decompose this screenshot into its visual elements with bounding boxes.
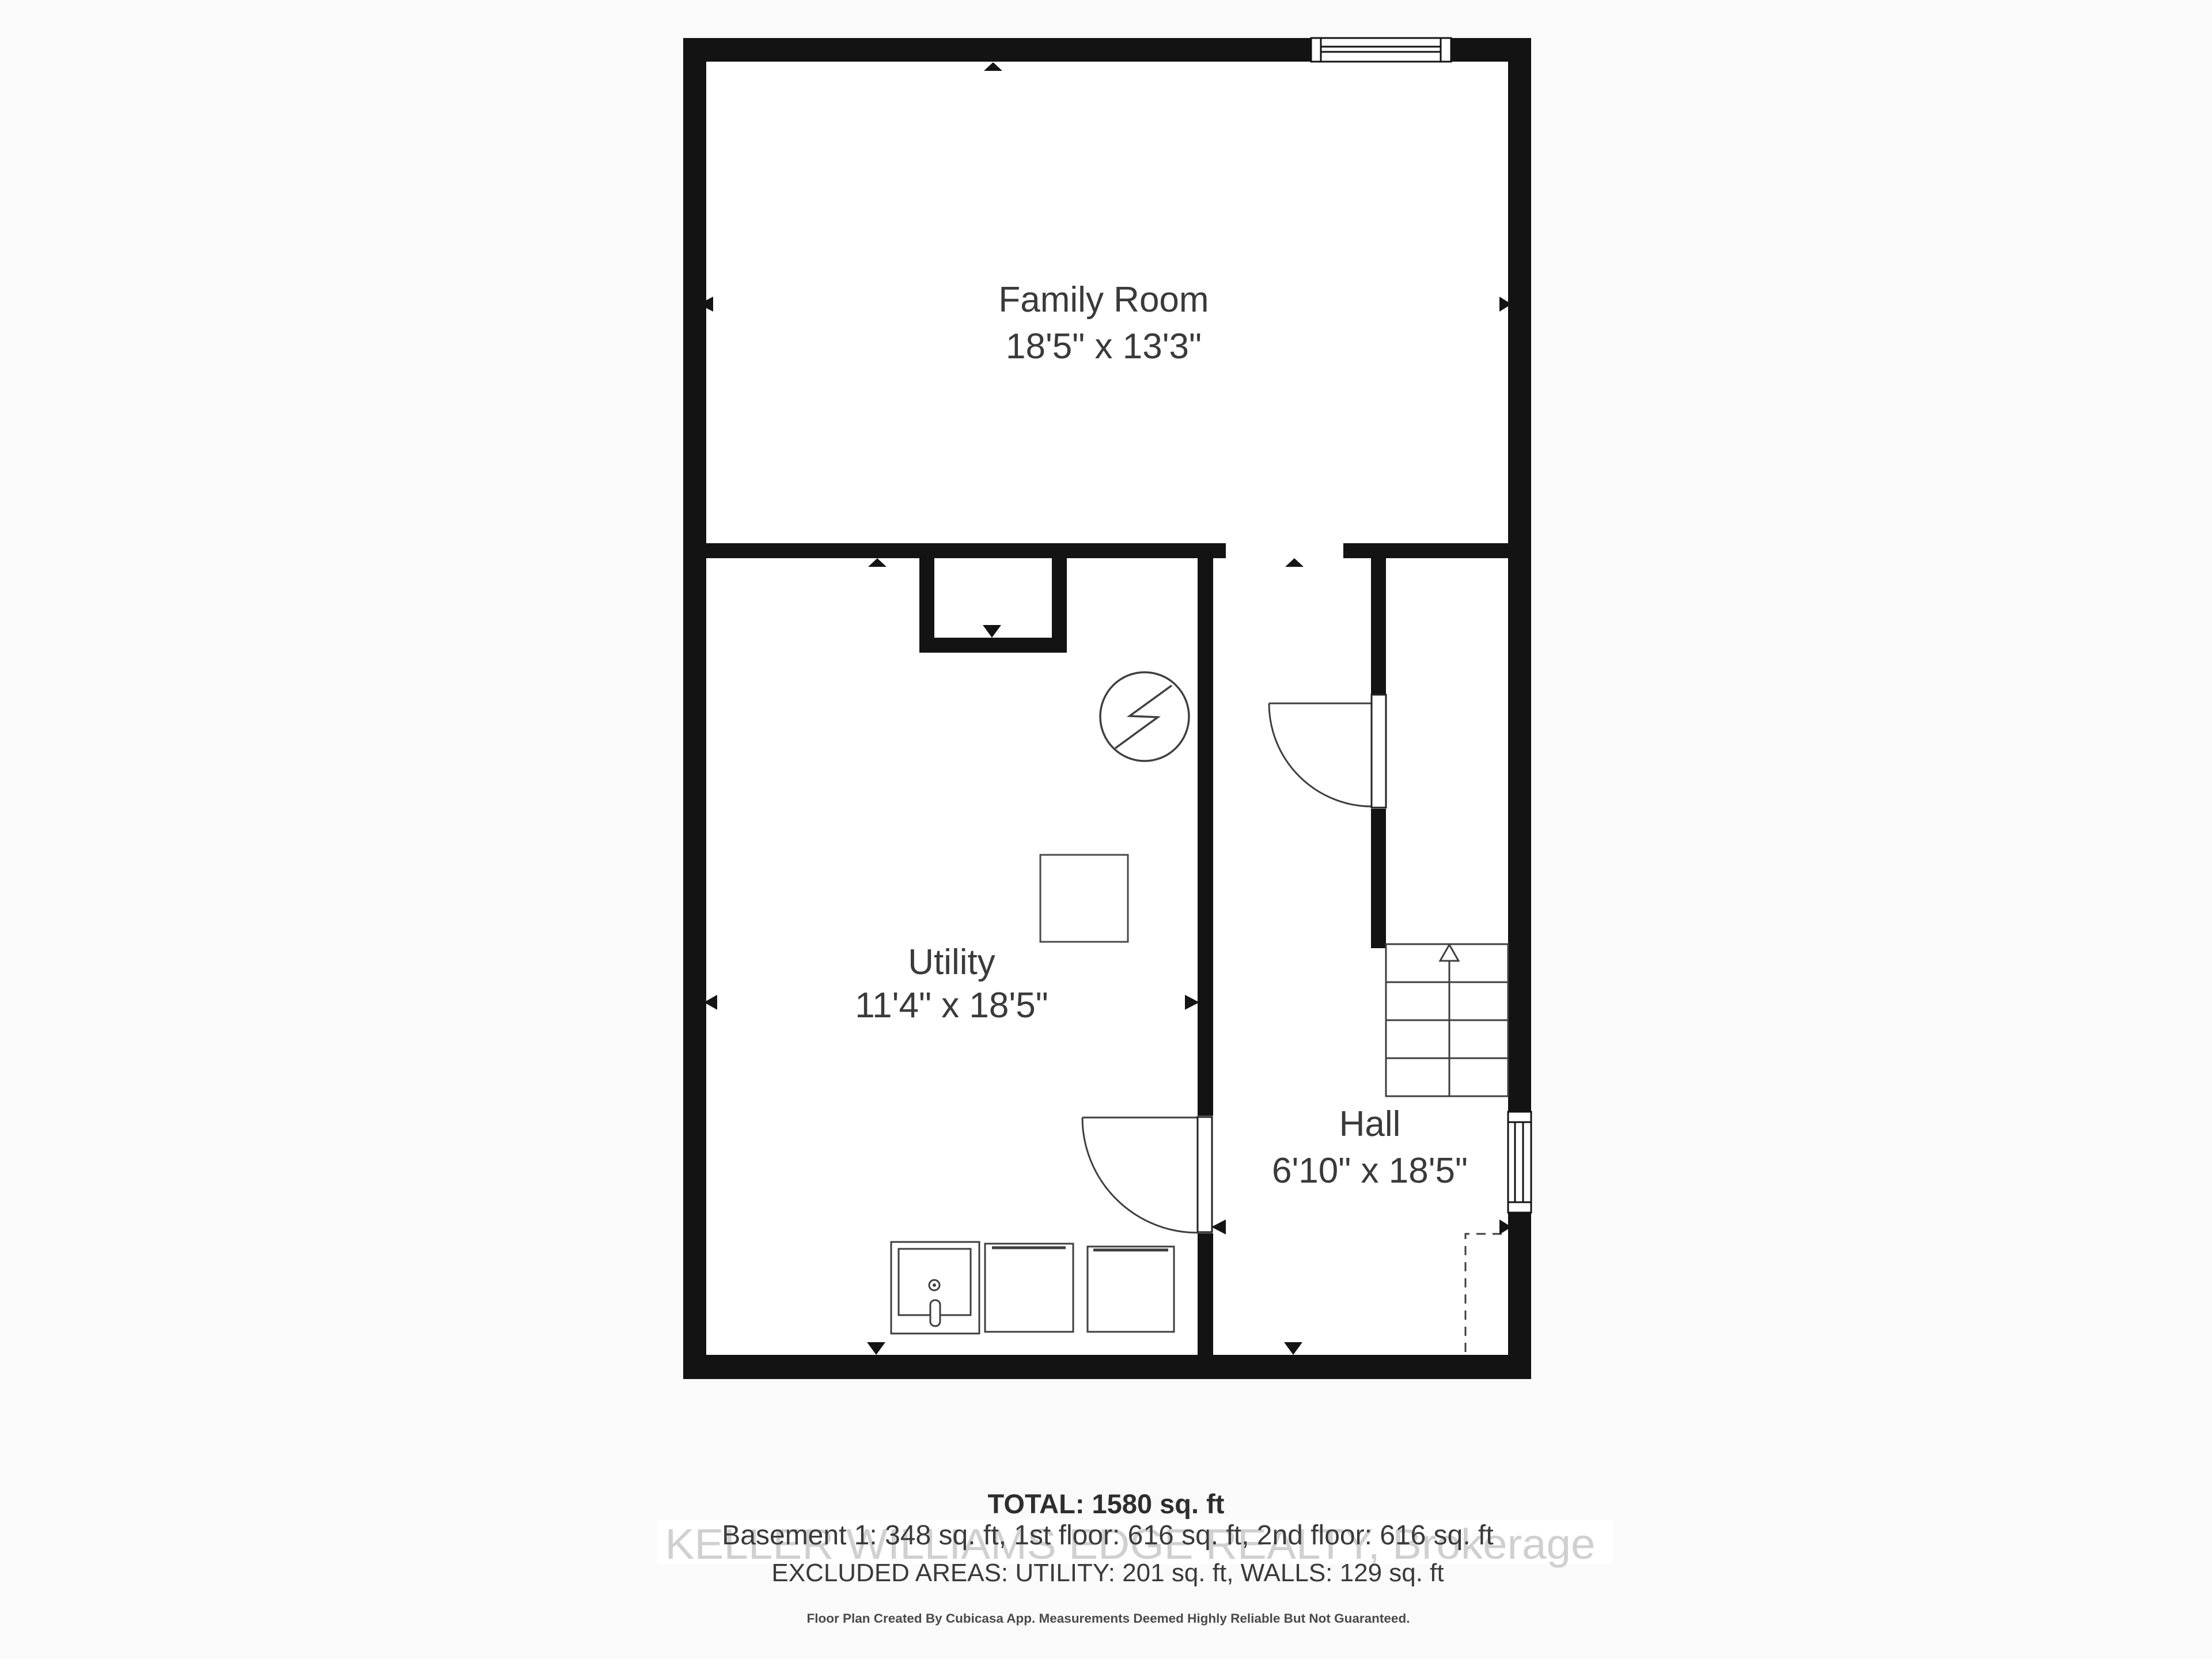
svg-text:Basement 1: 348 sq. ft, 1st fl: Basement 1: 348 sq. ft, 1st floor: 616 s… — [722, 1520, 1493, 1551]
svg-text:Floor Plan Created By Cubicasa: Floor Plan Created By Cubicasa App. Meas… — [807, 1611, 1410, 1626]
svg-text:TOTAL: 1580 sq. ft: TOTAL: 1580 sq. ft — [988, 1488, 1225, 1519]
svg-text:Utility: Utility — [908, 942, 995, 982]
svg-text:11'4" x 18'5": 11'4" x 18'5" — [855, 986, 1048, 1025]
svg-text:6'10" x 18'5": 6'10" x 18'5" — [1272, 1151, 1468, 1191]
svg-text:Family Room: Family Room — [998, 280, 1209, 320]
svg-text:EXCLUDED AREAS: UTILITY: 201 s: EXCLUDED AREAS: UTILITY: 201 sq. ft, WAL… — [771, 1559, 1444, 1587]
svg-text:Hall: Hall — [1339, 1104, 1401, 1144]
svg-text:18'5" x 13'3": 18'5" x 13'3" — [1006, 327, 1202, 366]
